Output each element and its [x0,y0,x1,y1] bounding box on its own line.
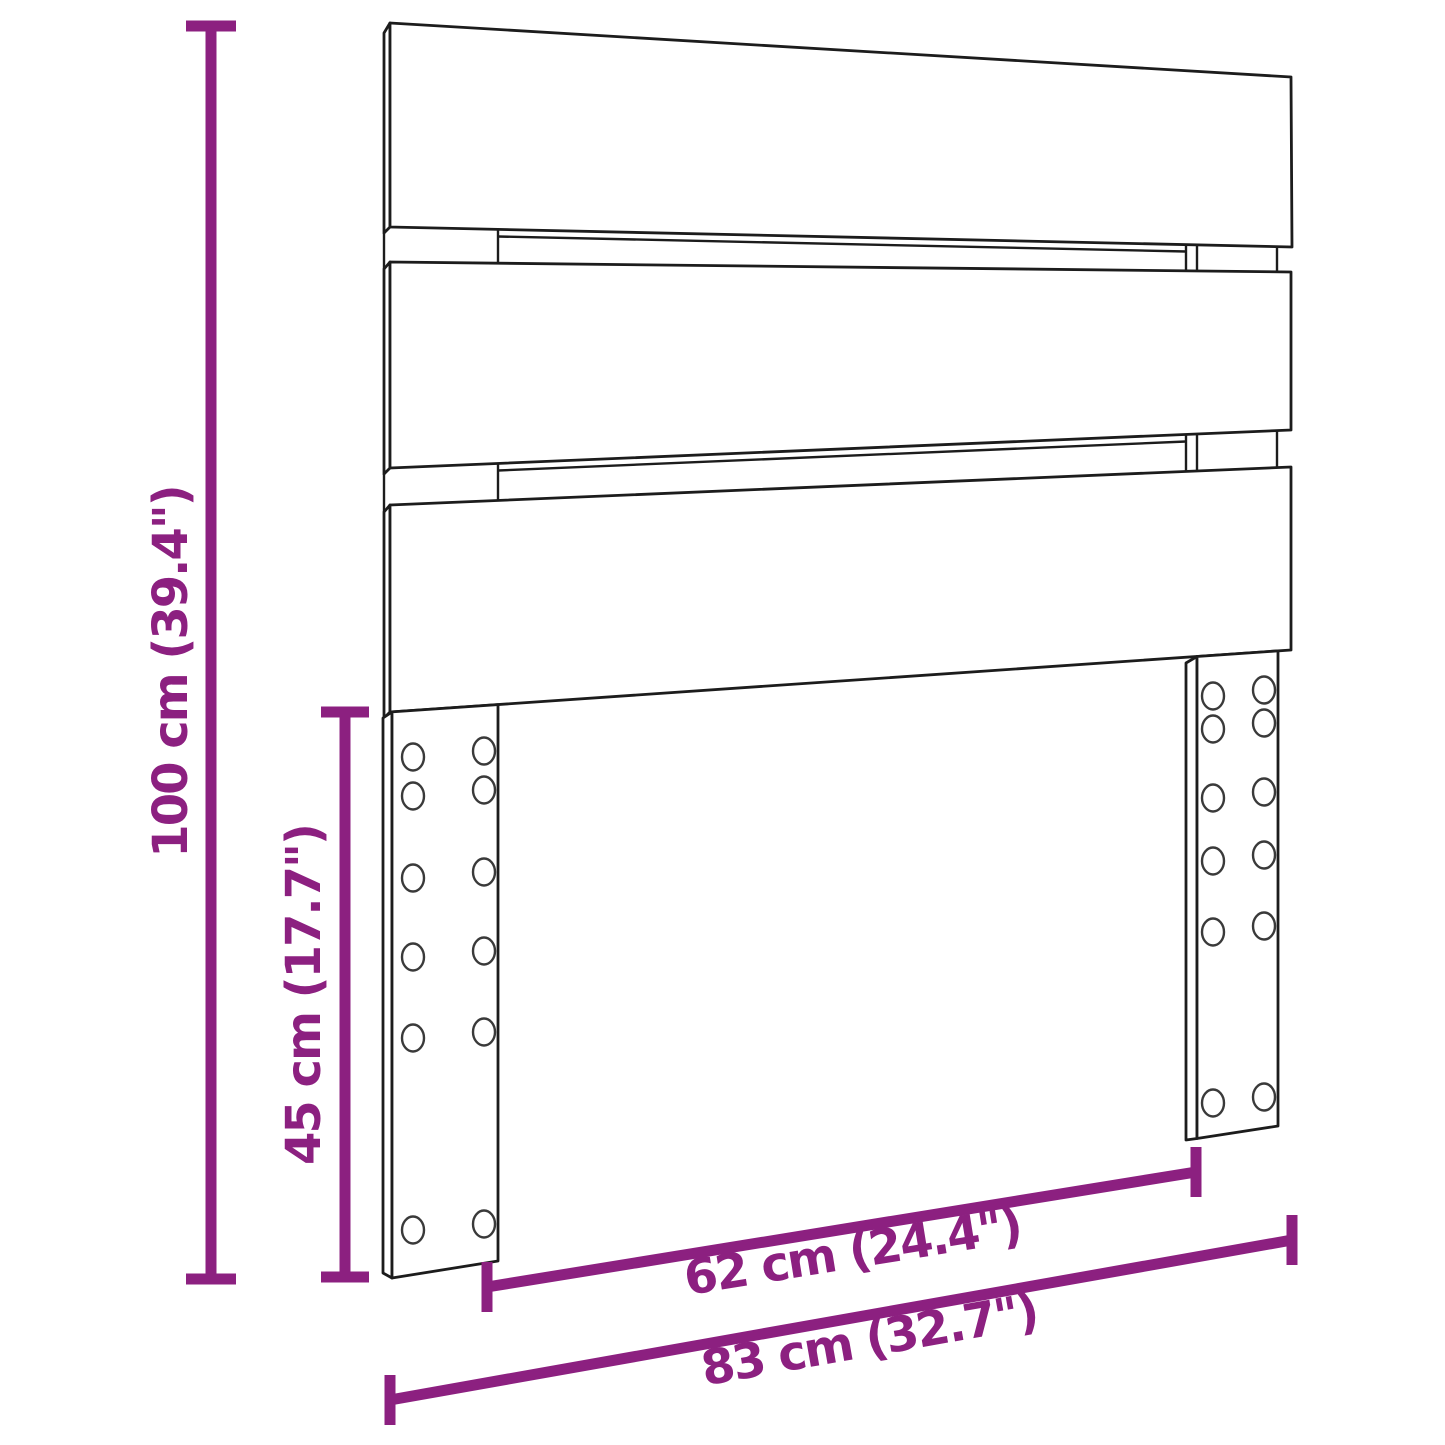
dimension-leg-height: 45 cm (17.7") [276,712,369,1277]
slat-bottom [384,467,1291,718]
slat-top-front-face [390,23,1292,247]
screw-hole [1202,1090,1224,1117]
dimension-overall-height: 100 cm (39.4") [143,26,236,1279]
screw-hole [1202,785,1224,812]
screw-hole [473,738,495,765]
screw-hole [473,777,495,804]
slat-top [384,23,1292,247]
screw-hole [1253,913,1275,940]
slat-middle-front-face [390,262,1291,468]
diagram-canvas: 100 cm (39.4") 45 cm (17.7") 62 cm (24.4… [0,0,1445,1445]
screw-hole [402,1025,424,1052]
screw-hole [1253,842,1275,869]
screw-hole [1202,683,1224,710]
dimension-label: 100 cm (39.4") [143,486,199,857]
leg-right [1186,651,1278,1140]
leg-left [383,705,498,1278]
screw-hole [473,938,495,965]
screw-hole [473,1211,495,1238]
screw-hole [1253,1084,1275,1111]
slat-bottom-front-face [390,467,1291,712]
screw-hole [402,944,424,971]
dimension-label: 45 cm (17.7") [276,825,332,1165]
screw-hole [1253,779,1275,806]
screw-hole [1202,848,1224,875]
screw-hole [402,1217,424,1244]
screw-hole [473,1019,495,1046]
headboard-drawing [383,23,1292,1278]
screw-hole [473,859,495,886]
screw-hole [1253,677,1275,704]
headboard-dimension-diagram: 100 cm (39.4") 45 cm (17.7") 62 cm (24.4… [0,0,1445,1445]
dimension-inner-width: 62 cm (24.4") [487,1147,1196,1312]
screw-hole [402,783,424,810]
dimension-label: 83 cm (32.7") [697,1283,1042,1397]
screw-hole [1202,919,1224,946]
dimension-label: 62 cm (24.4") [680,1197,1025,1307]
screw-hole [402,744,424,771]
screw-hole [1253,710,1275,737]
screw-hole [402,865,424,892]
leg-right-side-face [1186,657,1197,1141]
screw-hole [1202,716,1224,743]
